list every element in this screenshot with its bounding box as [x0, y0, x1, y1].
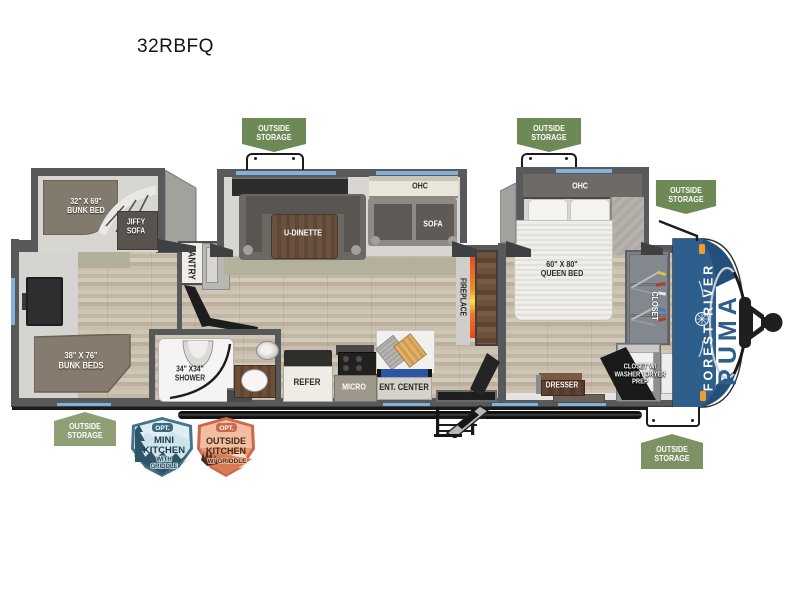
svg-text:KITCHEN: KITCHEN — [206, 446, 246, 456]
svg-text:WITH: WITH — [156, 457, 171, 463]
svg-text:W/ GRIDDLE: W/ GRIDDLE — [208, 458, 248, 465]
svg-text:OPT.: OPT. — [219, 425, 234, 432]
svg-text:OUTSIDE: OUTSIDE — [206, 436, 246, 446]
svg-text:GRIDDLE: GRIDDLE — [151, 464, 178, 470]
svg-text:KITCHEN: KITCHEN — [143, 445, 185, 456]
svg-text:OPT.: OPT. — [155, 425, 170, 432]
